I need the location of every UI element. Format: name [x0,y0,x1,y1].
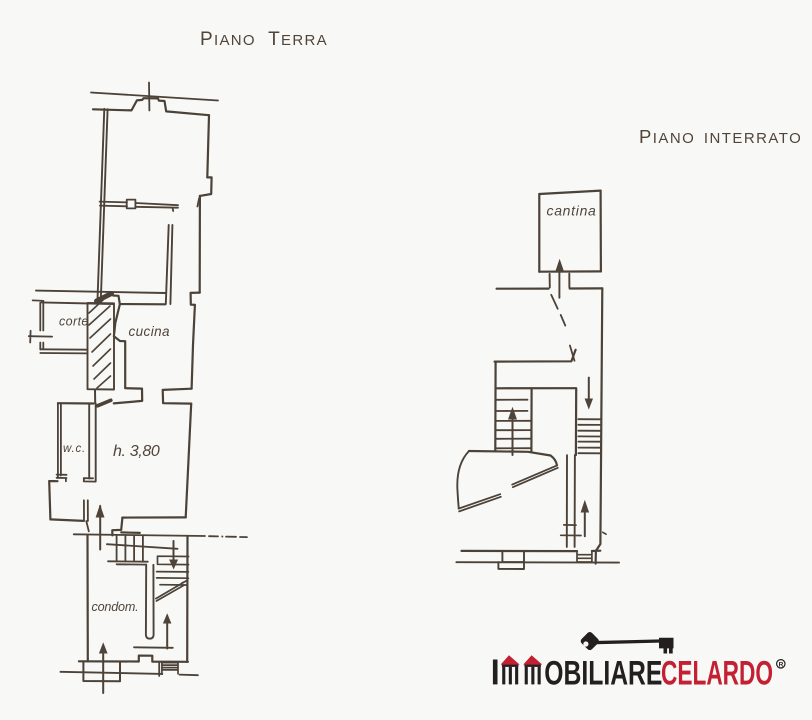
svg-text:OBILIARE: OBILIARE [544,655,662,693]
svg-text:h. 3,80: h. 3,80 [113,443,160,460]
svg-text:condom.: condom. [92,600,139,614]
svg-text:PIANO TERRA: PIANO TERRA [200,29,328,50]
svg-text:corte: corte [59,315,89,329]
svg-text:PIANO INTERRATO: PIANO INTERRATO [639,126,802,147]
svg-text:cantina: cantina [547,203,597,219]
svg-text:CELARDO: CELARDO [661,655,773,693]
svg-text:w.c.: w.c. [63,443,86,455]
svg-text:cucina: cucina [129,324,171,339]
svg-text:R: R [779,662,784,669]
